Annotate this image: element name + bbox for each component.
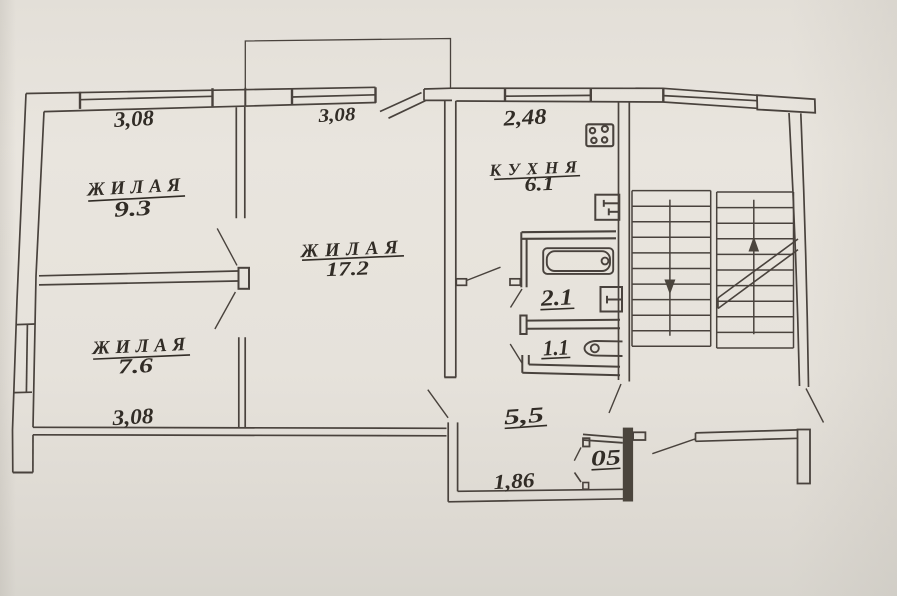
svg-text:5,5: 5,5: [503, 402, 545, 430]
svg-text:9.3: 9.3: [114, 195, 152, 222]
svg-text:05: 05: [590, 444, 621, 471]
svg-text:1,86: 1,86: [493, 468, 536, 494]
svg-text:6.1: 6.1: [524, 173, 555, 196]
svg-text:3,08: 3,08: [111, 403, 154, 430]
svg-text:2,48: 2,48: [502, 103, 547, 130]
svg-text:17.2: 17.2: [326, 257, 370, 281]
svg-text:3,08: 3,08: [317, 104, 357, 127]
svg-text:2.1: 2.1: [539, 284, 573, 310]
svg-text:3,08: 3,08: [112, 105, 154, 132]
svg-text:7.6: 7.6: [117, 353, 154, 379]
svg-text:1.1: 1.1: [542, 334, 569, 360]
